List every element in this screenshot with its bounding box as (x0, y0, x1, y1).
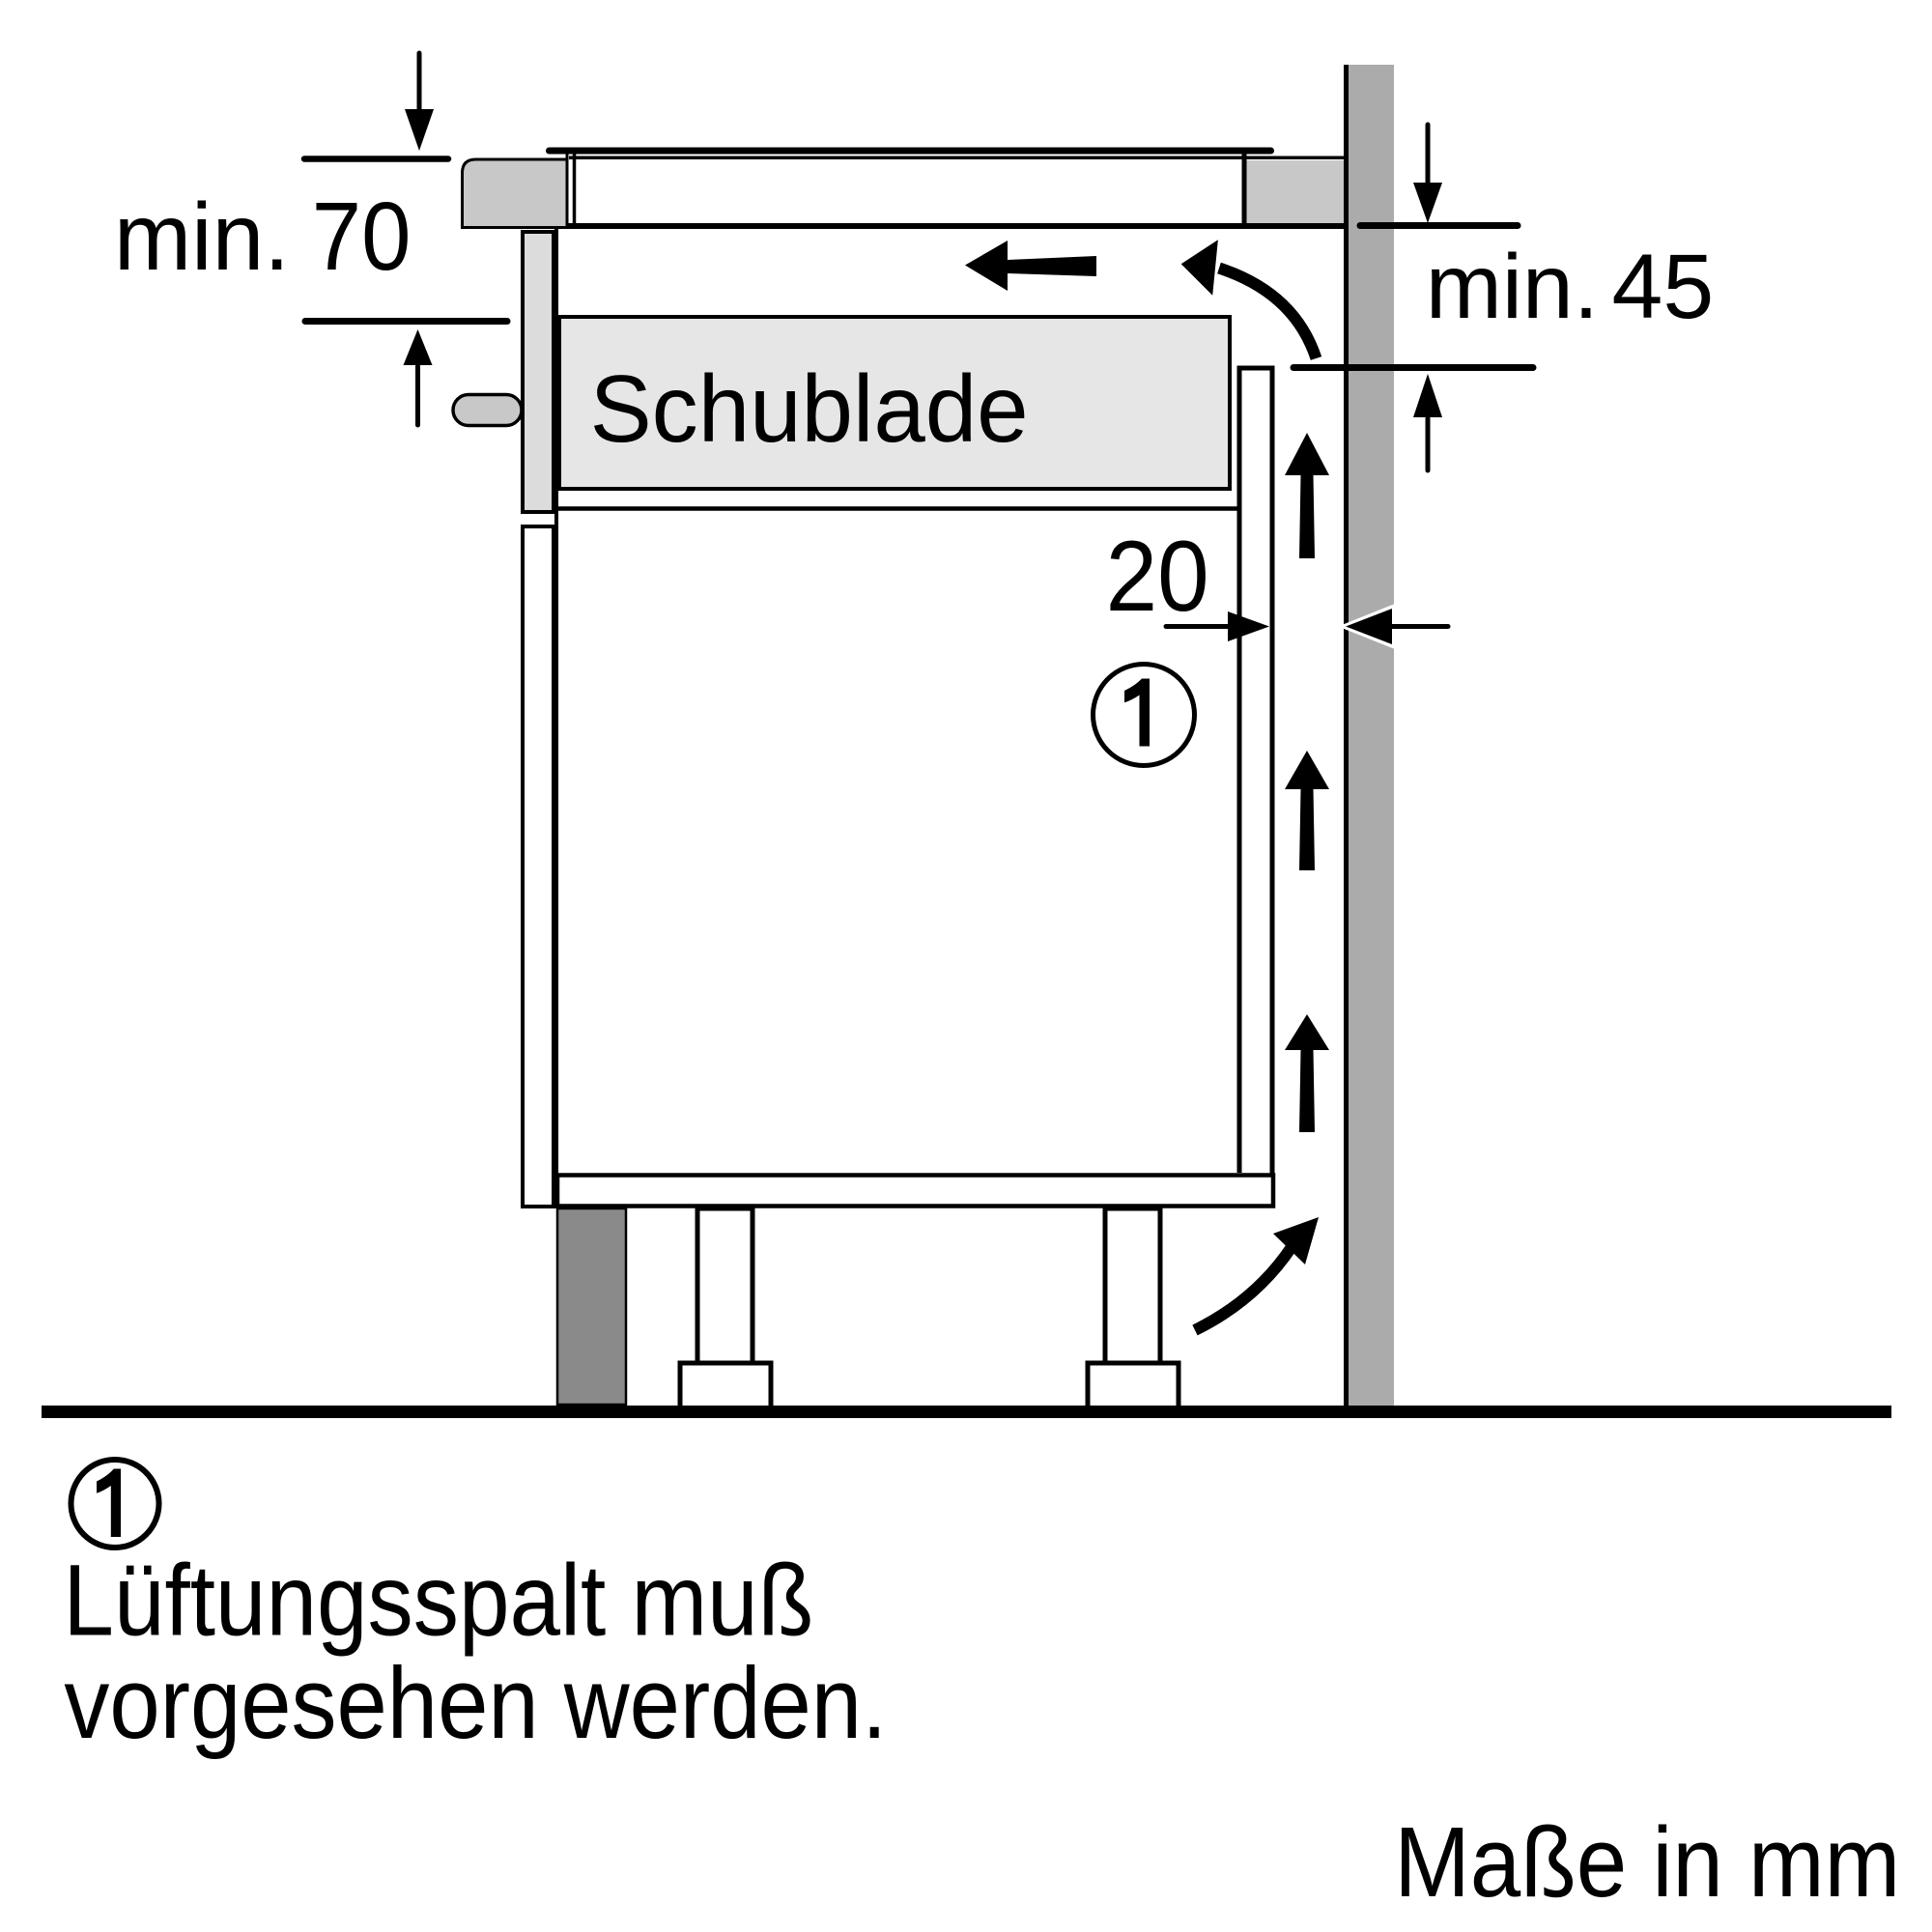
svg-text:Maße in mm: Maße in mm (1394, 1806, 1900, 1918)
svg-text:70: 70 (312, 183, 412, 291)
svg-text:vorgesehen werden.: vorgesehen werden. (64, 1647, 887, 1760)
svg-text:Lüftungsspalt muß: Lüftungsspalt muß (63, 1545, 813, 1658)
svg-text:min.: min. (1426, 236, 1599, 338)
svg-text:45: 45 (1612, 236, 1715, 338)
svg-text:Schublade: Schublade (590, 355, 1029, 462)
svg-text:min.: min. (114, 184, 290, 290)
svg-text:20: 20 (1106, 521, 1209, 633)
